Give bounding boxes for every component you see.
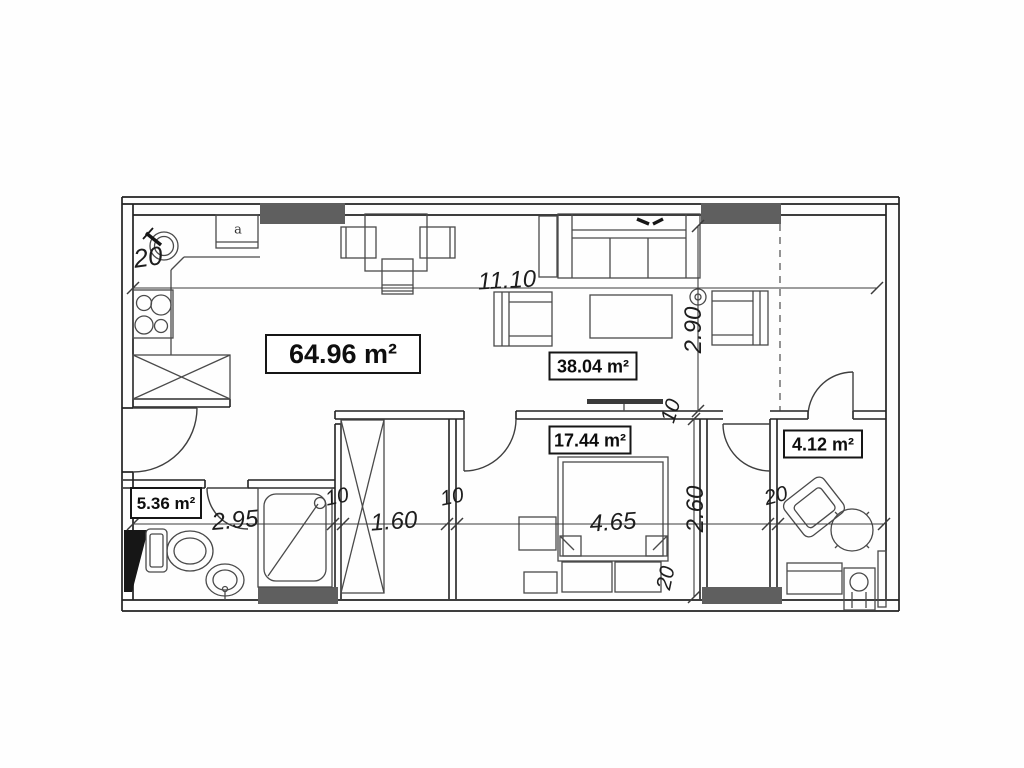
shaft-icon bbox=[124, 530, 148, 592]
floorplan-page: 64.96 m² 38.04 m² 17.44 m² 4.12 m² 5.36 … bbox=[0, 0, 1024, 768]
shower-icon bbox=[258, 488, 332, 587]
bed-bench-left-icon bbox=[562, 562, 612, 592]
round-table-icon bbox=[831, 509, 873, 551]
armchair-right-icon bbox=[712, 291, 768, 345]
entry-cabinet-icon bbox=[133, 355, 230, 399]
dim-top-width: 11.10 bbox=[477, 267, 536, 294]
dining-set-icon bbox=[341, 214, 455, 294]
dim-wall10-a: 10 bbox=[323, 484, 350, 509]
stand-icon bbox=[844, 568, 875, 610]
dim-hall-width: 1.60 bbox=[370, 508, 418, 535]
dim-living-depth: 2.90 bbox=[682, 307, 706, 354]
tv-icon bbox=[587, 399, 663, 411]
pillar-bottom-right bbox=[702, 587, 782, 604]
balcony-room-door bbox=[808, 372, 853, 419]
dim-wall10-b: 10 bbox=[438, 484, 465, 509]
dim-bed-width: 4.65 bbox=[589, 509, 637, 536]
kitchen-cabinet-letter: a bbox=[234, 223, 242, 238]
balcony-room-area bbox=[781, 474, 886, 610]
bedroom-area-label: 17.44 m² bbox=[549, 426, 632, 455]
sofa-icon bbox=[558, 214, 700, 278]
entry-door bbox=[133, 408, 197, 472]
total-area-label: 64.96 m² bbox=[265, 334, 421, 374]
dim-bedroom-depth: 2.60 bbox=[684, 486, 708, 533]
pillars bbox=[258, 203, 782, 604]
floorplan-drawing bbox=[0, 0, 1024, 768]
dim-bath-width: 2.95 bbox=[211, 507, 260, 535]
rotated-armchair-icon bbox=[781, 474, 847, 539]
living-area-label: 38.04 m² bbox=[549, 352, 638, 381]
nightstand-small-icon bbox=[524, 572, 557, 593]
kitchen-counter bbox=[171, 257, 260, 355]
dim-wall20-bottom: 20 bbox=[653, 564, 678, 591]
toilet-icon bbox=[146, 529, 213, 572]
bathroom-area-label: 5.36 m² bbox=[130, 487, 202, 519]
side-table-icon bbox=[539, 216, 557, 277]
dim-wall20-topleft: 20 bbox=[132, 242, 164, 272]
armchair-left-icon bbox=[494, 292, 552, 346]
stove-icon bbox=[133, 290, 173, 338]
niche-door bbox=[723, 424, 770, 471]
radiator-icon bbox=[878, 551, 886, 607]
bedroom-door bbox=[464, 419, 516, 471]
dim-wall20-mid: 20 bbox=[762, 483, 790, 509]
bench-icon bbox=[787, 563, 842, 594]
coffee-table-icon bbox=[590, 295, 672, 338]
nightstand-icon bbox=[519, 517, 556, 550]
pillar-top-left bbox=[260, 203, 345, 224]
washbasin-icon bbox=[206, 564, 244, 600]
outer-walls bbox=[122, 197, 899, 611]
pillar-bottom-left bbox=[258, 587, 338, 604]
balcony-room-area-label: 4.12 m² bbox=[783, 430, 863, 459]
pillar-top-right bbox=[701, 203, 781, 224]
